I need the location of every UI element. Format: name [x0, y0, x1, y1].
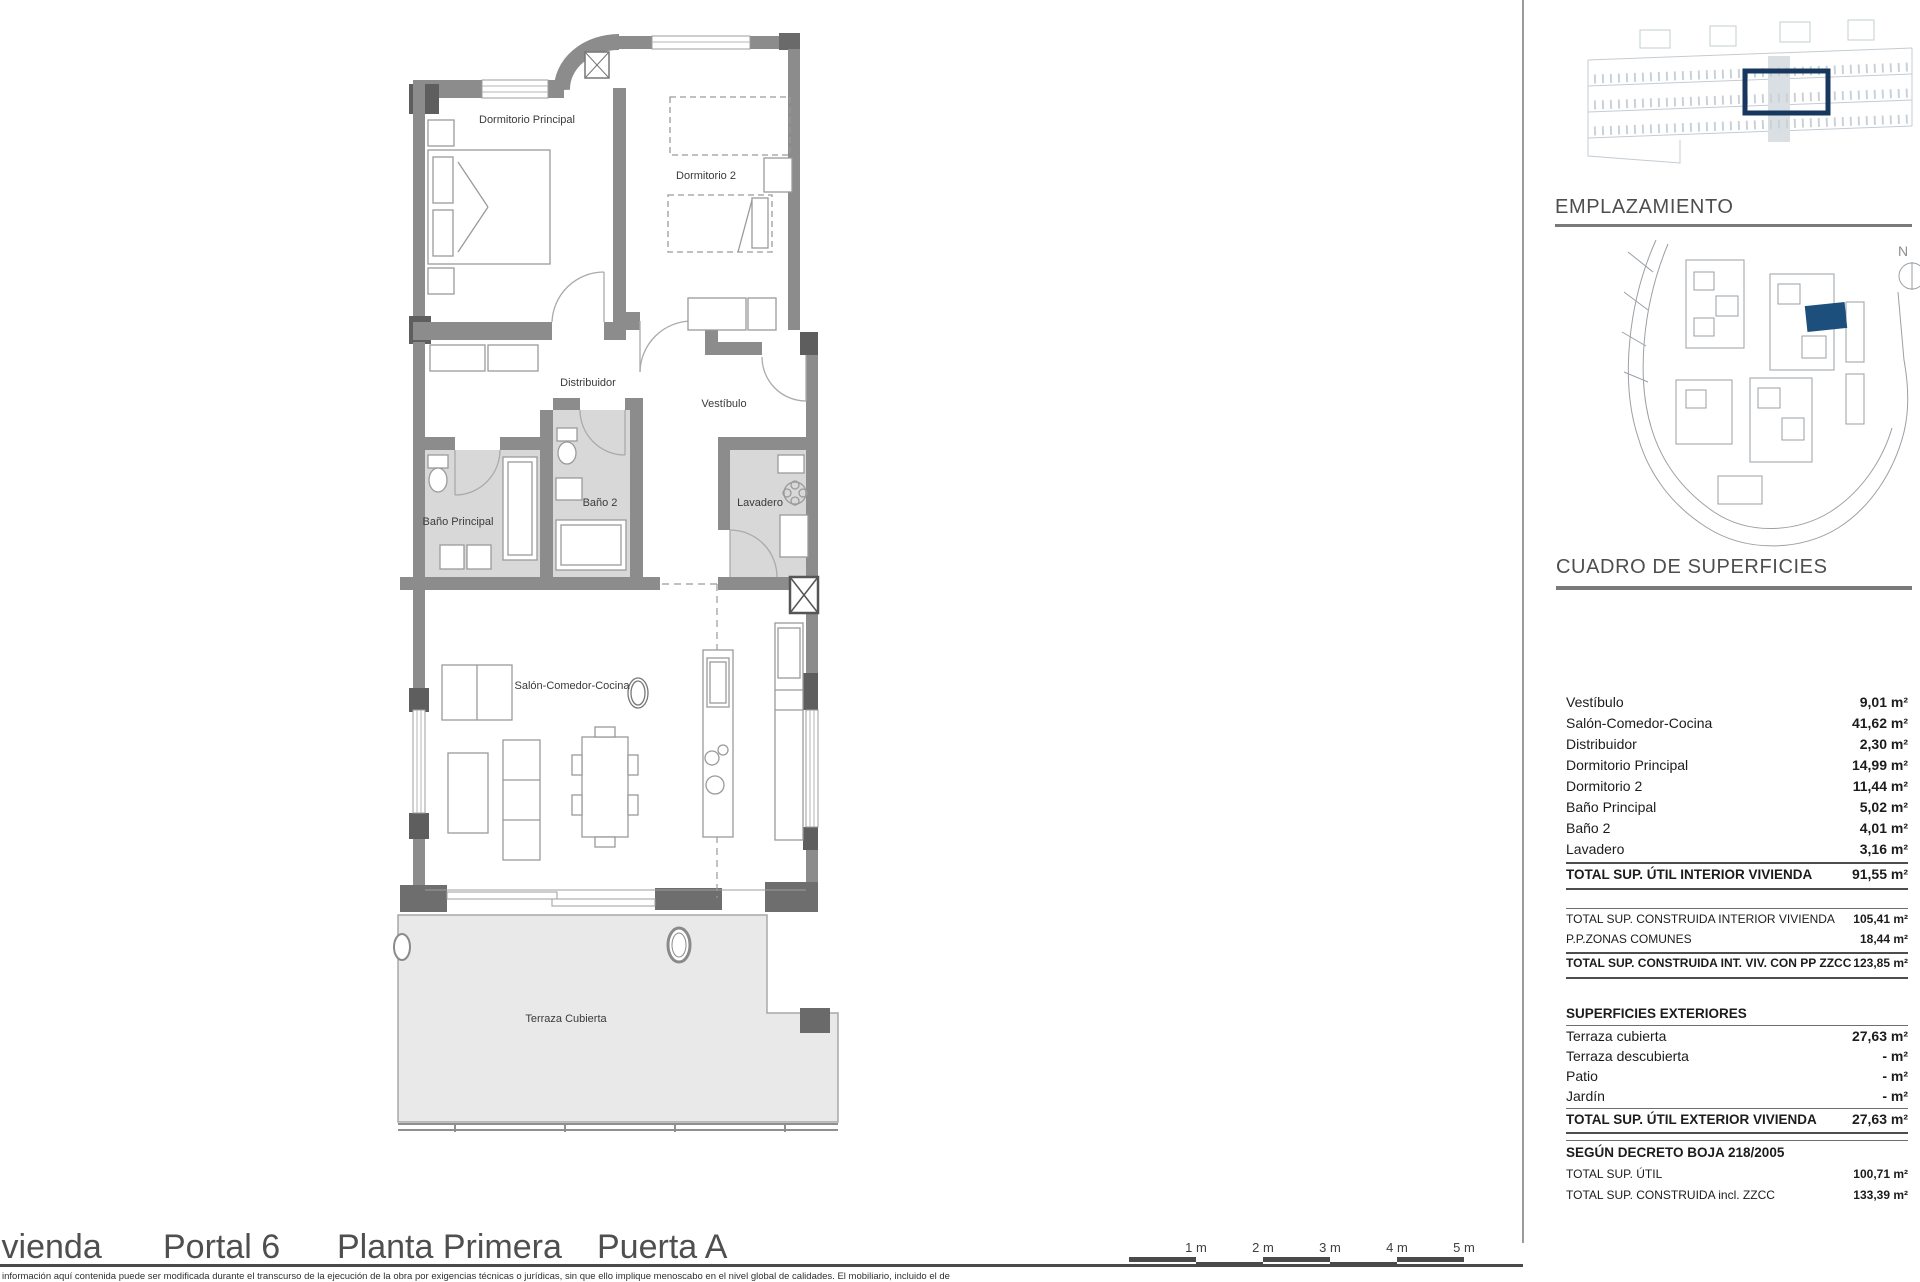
fridge-column	[775, 623, 803, 840]
surfaces-rule	[1556, 586, 1912, 590]
surfaces-title: CUADRO DE SUPERFICIES	[1556, 556, 1828, 579]
label-lavadero: Lavadero	[737, 497, 783, 509]
north-compass-icon: N	[1898, 243, 1920, 290]
table-row: Baño Principal 5,02 m²	[1566, 799, 1908, 820]
sheet-title-planta: Planta Primera	[337, 1228, 562, 1267]
shaft-x-icon	[790, 577, 818, 613]
emplazamiento-title: EMPLAZAMIENTO	[1555, 196, 1734, 219]
table-row: Distribuidor 2,30 m²	[1566, 736, 1908, 757]
decreto-header: SEGÚN DECRETO BOJA 218/2005	[1566, 1140, 1908, 1167]
table-total-row: TOTAL SUP. ÚTIL INTERIOR VIVIENDA 91,55 …	[1566, 862, 1908, 890]
kitchen-island	[703, 650, 733, 837]
surfaces-construida-table: TOTAL SUP. CONSTRUIDA INTERIOR VIVIENDA …	[1566, 908, 1908, 979]
shaft-x-icon	[585, 52, 609, 78]
table-row: TOTAL SUP. CONSTRUIDA incl. ZZCC 133,39 …	[1566, 1188, 1908, 1209]
unit-highlight-fill	[1805, 302, 1847, 332]
surfaces-decreto-table: SEGÚN DECRETO BOJA 218/2005 TOTAL SUP. Ú…	[1566, 1140, 1908, 1209]
label-bano-principal: Baño Principal	[423, 516, 494, 528]
terrace-floor	[398, 915, 838, 1122]
sheet-title-puerta: Puerta A	[597, 1228, 727, 1267]
floorplan-sheet: { "plan": { "room_labels": { "dormitorio…	[0, 0, 1920, 1280]
table-row: Terraza descubierta - m²	[1566, 1048, 1908, 1068]
wardrobe	[430, 345, 538, 371]
table-total-row: TOTAL SUP. ÚTIL EXTERIOR VIVIENDA 27,63 …	[1566, 1108, 1908, 1134]
sliding-door	[425, 890, 806, 906]
table-total-row: TOTAL SUP. CONSTRUIDA INT. VIV. CON PP Z…	[1566, 952, 1908, 979]
label-terraza: Terraza Cubierta	[525, 1013, 607, 1025]
floor-plan: Dormitorio Principal Dormitorio 2 Distri…	[0, 0, 1200, 1280]
sheet-title-vivienda: ivienda	[0, 1228, 102, 1267]
table-row: P.P.ZONAS COMUNES 18,44 m²	[1566, 932, 1908, 952]
table-row: Vestíbulo 9,01 m²	[1566, 694, 1908, 715]
ceiling-light	[628, 678, 648, 708]
table-row: Lavadero 3,16 m²	[1566, 841, 1908, 862]
table-row: Jardín - m²	[1566, 1088, 1908, 1108]
table-row: Salón-Comedor-Cocina 41,62 m²	[1566, 715, 1908, 736]
emplazamiento-rule	[1555, 224, 1912, 227]
svg-text:N: N	[1898, 243, 1908, 259]
table-row: Terraza cubierta 27,63 m²	[1566, 1026, 1908, 1048]
table-row: Dormitorio 2 11,44 m²	[1566, 778, 1908, 799]
surfaces-exterior-table: SUPERFICIES EXTERIORES Terraza cubierta …	[1566, 1006, 1908, 1134]
panel-divider	[1522, 0, 1524, 1243]
table-row: Dormitorio Principal 14,99 m²	[1566, 757, 1908, 778]
table-row: Baño 2 4,01 m²	[1566, 820, 1908, 841]
label-distribuidor: Distribuidor	[560, 377, 616, 389]
label-salon: Salón-Comedor-Cocina	[515, 680, 631, 692]
dining-table	[572, 727, 638, 847]
table-row: TOTAL SUP. CONSTRUIDA INTERIOR VIVIENDA …	[1566, 912, 1908, 932]
label-bano-2: Baño 2	[583, 497, 618, 509]
label-dormitorio-2: Dormitorio 2	[676, 170, 736, 182]
label-dormitorio-principal: Dormitorio Principal	[479, 114, 575, 126]
surfaces-interior-table: Vestíbulo 9,01 m² Salón-Comedor-Cocina 4…	[1566, 694, 1908, 890]
sheet-title-portal: Portal 6	[163, 1228, 280, 1267]
label-vestibulo: Vestíbulo	[701, 398, 746, 410]
building-elevation	[1580, 8, 1920, 173]
living-furniture	[442, 623, 803, 860]
table-row: Patio - m²	[1566, 1068, 1908, 1088]
terrace-railing	[398, 1124, 838, 1132]
disclaimer-text: información aquí contenida puede ser mod…	[2, 1271, 1102, 1282]
exterior-header: SUPERFICIES EXTERIORES	[1566, 1006, 1908, 1026]
footer-rule	[0, 1264, 1523, 1267]
bed-dorm2	[668, 97, 792, 330]
site-map: N	[1598, 232, 1920, 562]
bed-principal	[428, 120, 550, 294]
table-row: TOTAL SUP. ÚTIL 100,71 m²	[1566, 1167, 1908, 1188]
